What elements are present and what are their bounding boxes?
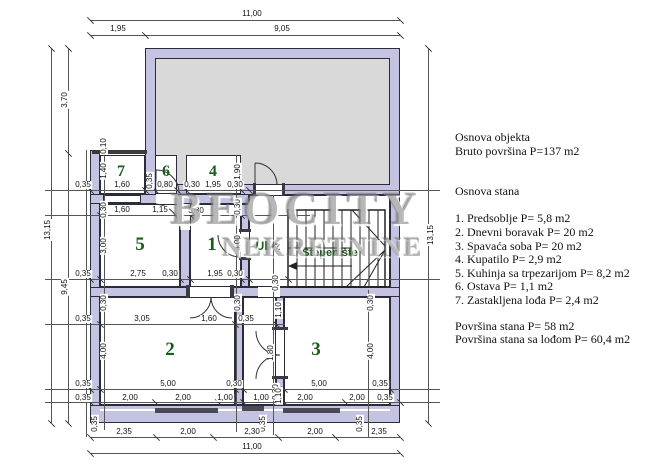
dim-label: 2,00	[348, 394, 366, 402]
dim-label: 1,40	[100, 162, 108, 180]
wall-row-bc	[90, 287, 400, 297]
door-jamb	[239, 229, 251, 232]
dim-label: 3,00	[234, 234, 242, 252]
dim-label: 3,70	[61, 91, 69, 109]
dim-label: 5,00	[310, 380, 328, 388]
dim-line	[90, 453, 400, 454]
dim-label: 1,95	[204, 181, 222, 189]
dim-label: 1,95	[109, 25, 127, 33]
dim-label: 2,35	[115, 428, 133, 436]
dim-label: 2,00	[121, 394, 139, 402]
dim-label: 0,30	[100, 294, 108, 312]
plan-label: Stepenište	[302, 247, 358, 259]
room-number-1: 1	[207, 234, 217, 256]
door-jamb	[239, 257, 251, 260]
dim-label: 0,35	[146, 172, 154, 190]
room-number-2: 2	[165, 339, 175, 361]
dim-label: 9,05	[273, 25, 291, 33]
dim-label: 0,35	[376, 394, 394, 402]
dim-label: 1,00	[216, 394, 234, 402]
dim-label: 2,35	[370, 428, 388, 436]
dim-label: 0,30	[234, 198, 242, 216]
dim-label: 1,90	[234, 163, 242, 181]
dim-label: 2,00	[179, 428, 197, 436]
dim-label: 1,95	[206, 270, 224, 278]
info-line: 2. Dnevni boravak P= 20 m2	[455, 225, 594, 240]
room-number-3: 3	[311, 339, 321, 361]
dim-label: 0,30	[225, 380, 243, 388]
dim-label: 3,00	[100, 237, 108, 255]
dim-label: 0,35	[356, 415, 364, 433]
plan-label: Ulaz	[256, 239, 281, 253]
window-room3	[283, 408, 340, 413]
door-opening-2	[188, 287, 232, 297]
pass-through	[103, 195, 141, 203]
info-line: 1. Predsoblje P= 5,8 m2	[455, 211, 570, 226]
info-line: Površina stana sa lođom P= 60,4 m2	[455, 332, 630, 347]
dim-label: 0,10	[100, 137, 108, 155]
dim-label: 11,00	[241, 443, 262, 451]
dim-label: 2,00	[174, 394, 192, 402]
dim-label: 1,60	[113, 206, 131, 214]
dim-label: 1,60	[113, 181, 131, 189]
info-line: 6. Ostava P= 1,1 m2	[455, 279, 553, 294]
dim-label: 0,30	[183, 181, 201, 189]
dim-label: 1,60	[200, 315, 218, 323]
dim-line	[368, 290, 369, 437]
dim-label: 11,00	[241, 10, 262, 18]
dim-label: 9,45	[61, 278, 69, 296]
dim-label: 0,35	[371, 380, 389, 388]
dim-label: 1,10	[275, 387, 283, 405]
dim-line	[45, 215, 310, 216]
door-opening-3	[276, 330, 284, 378]
dim-line	[45, 324, 285, 325]
dim-label: 0,35	[74, 380, 92, 388]
dim-label: 1,10	[275, 301, 283, 319]
window-corridor	[242, 406, 264, 411]
dim-label: 0,30	[226, 181, 244, 189]
dim-label: 0,35	[74, 270, 92, 278]
dim-label: 0,30	[234, 294, 242, 312]
dim-label: 4,00	[100, 342, 108, 360]
dim-label: 13,15	[427, 224, 435, 246]
dim-label: 3,05	[133, 315, 151, 323]
info-line: Osnova stana	[455, 184, 519, 199]
dim-label: 2,00	[296, 394, 314, 402]
floor-plan-page: 11,001,959,0513,153,709,4513,150,351,600…	[0, 0, 654, 467]
door-opening-1	[241, 231, 249, 259]
dim-label: 0,35	[237, 315, 255, 323]
room-number-7: 7	[117, 163, 125, 181]
dim-label: 0,35	[91, 415, 99, 433]
dim-label: 1,00	[252, 394, 270, 402]
dim-label: 0,30	[226, 270, 244, 278]
dim-label: 0,35	[74, 315, 92, 323]
dim-label: 0,30	[161, 270, 179, 278]
dim-label: 4,00	[367, 342, 375, 360]
door-jamb	[186, 285, 190, 298]
dim-label: 0,30	[187, 207, 205, 215]
room-number-5: 5	[135, 234, 145, 256]
dim-label: 0,30	[100, 201, 108, 219]
dim-line	[90, 437, 400, 438]
dim-label: 2,75	[129, 270, 147, 278]
dim-label: 13,15	[44, 219, 52, 241]
dim-label: 0,35	[74, 181, 92, 189]
info-line: Bruto površina P=137 m2	[455, 144, 579, 159]
dim-line	[90, 35, 400, 36]
window-room2	[155, 408, 218, 413]
info-line: 4. Kupatilo P= 2,9 m2	[455, 252, 562, 267]
dim-label: 0,80	[156, 181, 174, 189]
info-line: Osnova objekta	[455, 130, 530, 145]
dim-label: 2,30	[243, 428, 261, 436]
door-opening-6	[156, 194, 178, 204]
dim-label: 5,00	[159, 380, 177, 388]
dim-label: 1,15	[151, 206, 169, 214]
dim-line	[90, 20, 400, 21]
dim-label: 0,30	[367, 294, 375, 312]
door-jamb	[272, 376, 288, 379]
room-number-6: 6	[162, 163, 170, 181]
dim-line	[104, 145, 105, 430]
info-line: 7. Zastakljena lođa P= 2,4 m2	[455, 293, 599, 308]
dim-label: 2,00	[306, 428, 324, 436]
door-jamb	[272, 327, 288, 330]
dim-label: 1,80	[267, 344, 275, 362]
room-number-4: 4	[209, 163, 217, 181]
dim-label: 0,35	[74, 394, 92, 402]
dim-label: 0,30	[272, 274, 280, 292]
